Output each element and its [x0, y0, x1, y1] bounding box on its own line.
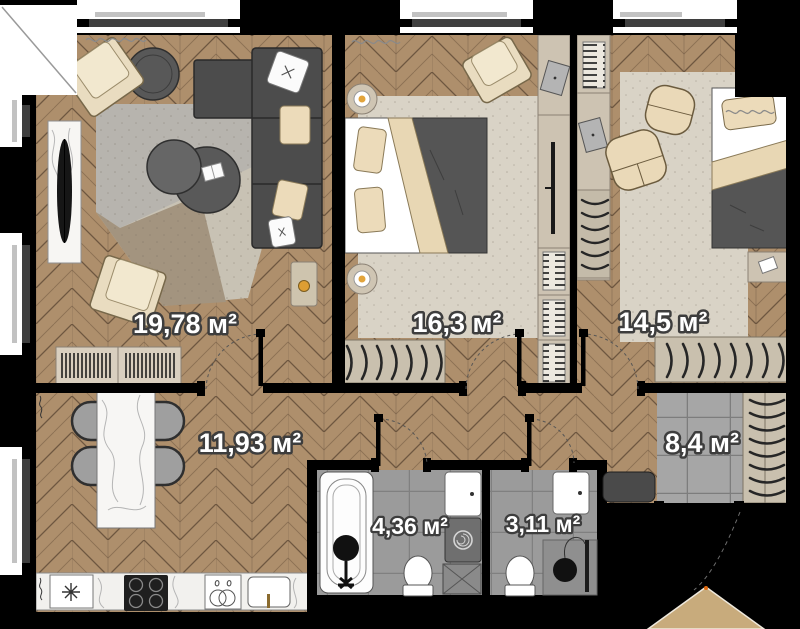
wc-sink — [553, 472, 589, 514]
window-left-2 — [0, 233, 30, 355]
wall-seg-entry-left — [605, 503, 662, 518]
label-bedroom-2: 14,5 м² — [618, 307, 707, 337]
wall-pier-top-1 — [240, 0, 400, 35]
toilet-bath-tank — [403, 585, 433, 596]
bath-wall-bottom — [307, 595, 607, 612]
wall-pier-left-bottom — [27, 575, 36, 620]
book-stack-4-lines — [583, 42, 605, 88]
wall-living-bedroom1 — [332, 33, 345, 393]
bath-sink — [445, 472, 481, 516]
floor-plan-canvas: 19,78 м² 16,3 м² 14,5 м² 11,93 м² 8,4 м²… — [0, 0, 800, 629]
washing-machine — [445, 518, 481, 562]
window-top-bedroom1 — [400, 0, 533, 33]
jamb-1 — [197, 381, 205, 396]
window-left-1 — [0, 95, 30, 147]
window-top-living — [77, 0, 240, 33]
jamb-entry-1 — [654, 501, 664, 519]
wall-seg-entry-right — [736, 503, 797, 518]
sofa-chaise — [194, 60, 256, 118]
label-hallway: 8,4 м² — [665, 428, 739, 458]
shower-head-wc — [553, 558, 577, 582]
bath-wall-top-1 — [307, 460, 375, 470]
door-handle-wc — [525, 414, 534, 422]
door-leaf-wc — [527, 418, 532, 466]
bed-pillow-1 — [353, 126, 387, 173]
label-bathroom: 4,36 м² — [372, 513, 448, 539]
door-leaf-bath — [376, 418, 381, 466]
label-wc: 3,11 м² — [506, 511, 581, 537]
window-left-3 — [0, 447, 30, 575]
door-leaf-bedroom2 — [581, 333, 586, 386]
door-leaf-kitchen — [259, 333, 264, 386]
coffee-table-small — [147, 140, 201, 194]
floor-plan: 19,78 м² 16,3 м² 14,5 м² 11,93 м² 8,4 м²… — [0, 0, 800, 629]
label-kitchen: 11,93 м² — [199, 428, 302, 458]
lamp-1-bulb — [359, 96, 366, 103]
dining-table-marble — [97, 390, 155, 528]
candle — [299, 281, 310, 292]
label-living-room: 19,78 м² — [133, 309, 237, 339]
wall-seg-1 — [36, 383, 200, 393]
wc-sink-drain — [578, 491, 582, 495]
jamb-8 — [569, 458, 577, 472]
tv — [551, 142, 555, 234]
bath-sink-drain — [470, 492, 474, 496]
wall-bedroom1-bedroom2 — [570, 33, 577, 393]
lamp-2-bulb — [359, 276, 366, 283]
bath-wall-left — [307, 460, 317, 612]
bath-wall-mid — [482, 460, 490, 612]
wall-right — [786, 22, 800, 518]
toilet-wc-tank — [505, 585, 535, 596]
bath-wall-top-2 — [425, 460, 525, 470]
books-right — [126, 353, 174, 378]
door-handle-bedroom2 — [579, 329, 588, 337]
books-left — [62, 353, 110, 378]
door-handle-bath — [374, 414, 383, 422]
label-bedroom-1: 16,3 м² — [412, 308, 501, 338]
book-stack-3-lines — [543, 344, 565, 382]
book-stack-2-lines — [543, 300, 565, 336]
window-top-bedroom2 — [613, 0, 737, 33]
wall-seg-6 — [639, 383, 787, 393]
sofa-pillow-white2 — [268, 216, 296, 248]
book-stack-1-lines — [543, 252, 565, 290]
door-leaf-bedroom1 — [517, 333, 522, 386]
wall-seg-4 — [520, 383, 570, 393]
entry-mat — [603, 472, 655, 502]
bed-pillow-2 — [354, 187, 386, 233]
wall-seg-3 — [345, 383, 462, 393]
door-handle-bedroom1 — [515, 329, 524, 337]
jamb-entry-2 — [734, 501, 744, 519]
sofa-pillow-beige1 — [280, 106, 310, 144]
faucet — [267, 594, 270, 608]
entry-marker-dot — [704, 586, 708, 590]
shower-rail — [585, 540, 589, 592]
door-handle-kitchen — [256, 329, 265, 337]
wall-seg-2 — [263, 383, 332, 393]
wall-pier-top-2 — [530, 0, 613, 35]
shower-head-bath — [333, 535, 359, 561]
